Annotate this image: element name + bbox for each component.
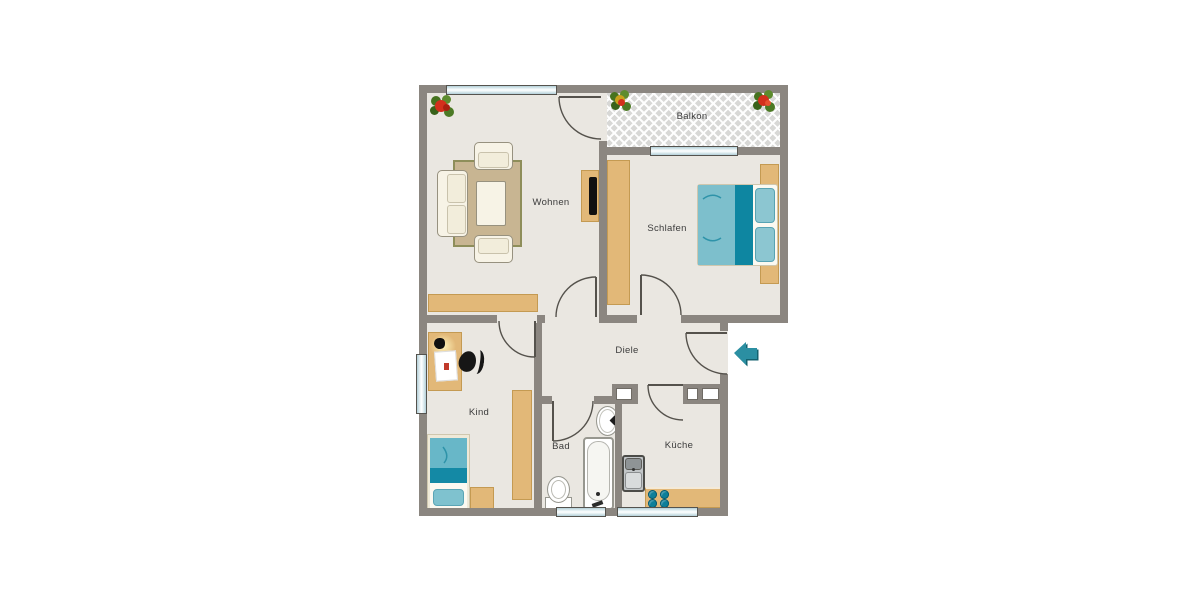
room-label-kind: Kind [449, 407, 509, 418]
pillow [433, 489, 464, 506]
floor-plan: Wohnen Schlafen Balkon Diele Kind Bad Kü… [0, 0, 1200, 600]
room-label-kueche: Küche [649, 440, 709, 451]
wardrobe [512, 390, 532, 500]
kitchen-sink-basin [625, 472, 642, 489]
duct-shaft-opening [687, 388, 698, 400]
wall [419, 85, 427, 516]
tv [589, 177, 597, 215]
room-label-wohnen: Wohnen [521, 197, 581, 208]
entrance-arrow-icon [734, 342, 759, 367]
wall [542, 396, 552, 404]
entrance-doorway-floor [720, 331, 728, 374]
wall [681, 315, 788, 323]
pillow [755, 188, 775, 223]
wall [615, 404, 622, 508]
wall [419, 315, 497, 323]
desk-lamp-icon [434, 338, 445, 349]
sofa [437, 170, 468, 237]
nightstand [470, 487, 494, 509]
wall [537, 315, 545, 323]
wall [599, 315, 637, 323]
window [416, 354, 427, 414]
duct-shaft-opening [702, 388, 719, 400]
room-label-bad: Bad [531, 441, 591, 452]
room-label-diele: Diele [597, 345, 657, 356]
wardrobe [607, 160, 630, 305]
stove-burner [660, 490, 669, 499]
plant-icon [752, 90, 780, 116]
plant-icon [429, 94, 459, 122]
kitchen-faucet-dot [632, 468, 635, 471]
window [617, 507, 698, 517]
bed-blanket [698, 185, 736, 265]
window [650, 146, 738, 156]
wall [780, 85, 788, 323]
bed-blanket [430, 438, 467, 468]
pillow [755, 227, 775, 262]
duct-shaft-opening [616, 388, 632, 400]
sideboard [428, 294, 538, 312]
bed-blanket-band [430, 468, 467, 483]
armchair [474, 235, 513, 263]
bathtub-drain [596, 492, 600, 496]
window [446, 85, 557, 95]
armchair [474, 142, 513, 170]
wall [534, 323, 542, 508]
stove-burner [648, 490, 657, 499]
bed-blanket-band [735, 185, 753, 265]
room-label-schlafen: Schlafen [637, 223, 697, 234]
window [556, 507, 606, 517]
plant-icon [609, 90, 635, 116]
paper-mark [444, 363, 449, 370]
toilet-bowl [547, 476, 570, 503]
coffee-table [476, 181, 506, 226]
wall [599, 141, 607, 315]
room-label-balkon: Balkon [662, 111, 722, 122]
